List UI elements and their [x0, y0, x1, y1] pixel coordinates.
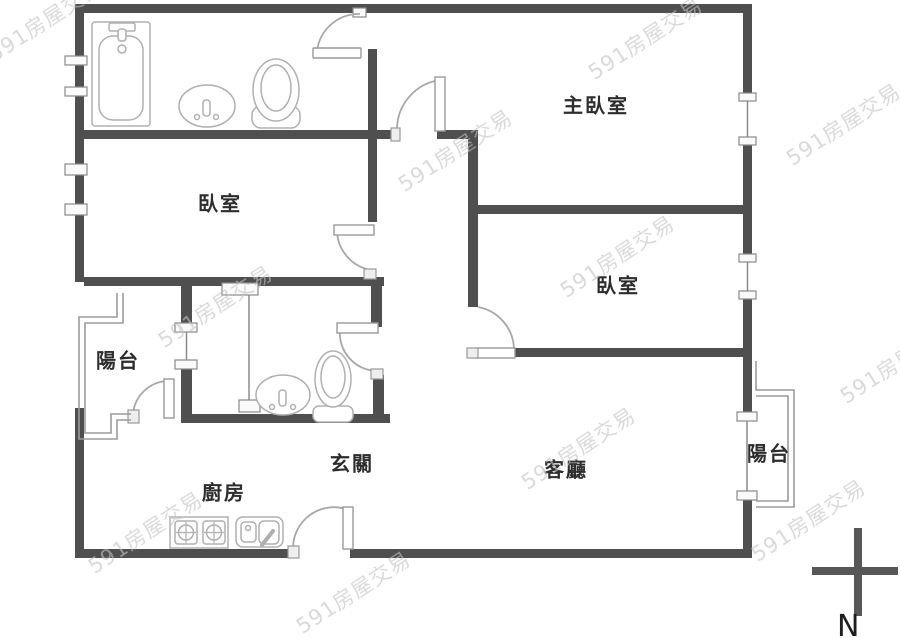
- wall-masterbed-nook-right: [468, 130, 478, 210]
- window-masterbed-cap-bottom: [739, 137, 756, 145]
- glass-partition-cap-top: [222, 283, 258, 295]
- floorplan-drawing: N: [0, 0, 900, 638]
- walls: [75, 4, 752, 558]
- door-balcony-left-leaf: [164, 379, 174, 418]
- wall-exterior-left-upper: [75, 4, 84, 282]
- door-bath1-arc: [317, 14, 360, 52]
- door-bed2-leaf: [476, 348, 515, 358]
- wall-exterior-top: [75, 4, 752, 13]
- door-bed1-stop: [364, 269, 376, 279]
- toilet-icon-2: [313, 351, 353, 422]
- wall-mid-vertical-upper: [368, 49, 377, 222]
- room-label-bedroom-2: 臥室: [596, 270, 640, 299]
- wall-exterior-bottom-right: [350, 549, 752, 558]
- wall-tick-2: [65, 87, 87, 96]
- room-label-living-room: 客廳: [544, 454, 588, 483]
- north-compass-icon: N: [812, 528, 898, 638]
- wall-exterior-bottom-left: [75, 549, 296, 558]
- bathtub-icon: [92, 22, 150, 126]
- wall-exterior-right-1: [743, 4, 752, 95]
- door-bed1-leaf: [334, 225, 374, 235]
- wall-exterior-right-4: [743, 500, 752, 558]
- door-bath1-top-cap: [353, 8, 366, 17]
- wall-masterbed-divider: [468, 205, 752, 214]
- washbasin-icon: [179, 85, 235, 127]
- north-label: N: [837, 609, 859, 638]
- window-balcony-right-cap-top: [737, 412, 757, 421]
- wall-mid-vertical-lower: [373, 375, 384, 418]
- room-label-kitchen: 廚房: [202, 477, 246, 506]
- door-entry-leaf: [343, 507, 353, 549]
- windows: [65, 8, 757, 500]
- door-bath1-leaf: [313, 48, 361, 58]
- wall-bath2-left-lower: [181, 367, 192, 423]
- door-entry-stop: [288, 546, 299, 558]
- door-bed2-stop: [467, 348, 478, 358]
- door-bed1-arc: [337, 230, 371, 270]
- window-balcony-right-cap-bottom: [737, 491, 757, 500]
- floorplan-canvas: N 主臥室臥室臥室陽台陽台玄關廚房客廳 591房屋交易591房屋交易591房屋交…: [0, 0, 900, 638]
- window-bath2-cap-bottom: [175, 360, 197, 369]
- toilet-icon: [252, 59, 300, 128]
- room-label-bedroom-1: 臥室: [198, 188, 242, 217]
- window-bath2-cap-top: [175, 323, 197, 332]
- door-entry-arc: [293, 507, 346, 548]
- room-label-master-bedroom: 主臥室: [563, 90, 629, 119]
- wall-bath1-bottom: [84, 130, 392, 139]
- wall-bath2-left-upper: [181, 282, 192, 327]
- door-balcony-left-stop: [128, 410, 139, 423]
- door-bath2-leaf: [337, 323, 378, 333]
- compass-horizontal-bar: [812, 567, 898, 575]
- door-masterbed-stop: [391, 128, 400, 141]
- window-masterbed-cap-top: [739, 93, 756, 101]
- wall-tick-1: [65, 56, 87, 65]
- door-bed2-arc: [478, 307, 514, 349]
- wall-exterior-right-2: [743, 145, 752, 256]
- window-bed2-cap-top: [739, 254, 756, 262]
- door-masterbed-leaf: [435, 77, 445, 131]
- room-label-balcony-left: 陽台: [96, 345, 140, 374]
- room-label-entry-hall: 玄關: [330, 448, 374, 477]
- door-masterbed-arc: [397, 80, 440, 130]
- room-label-balcony-right: 陽台: [747, 438, 791, 467]
- wall-tick-3: [65, 164, 87, 175]
- washbasin-icon-2: [256, 375, 310, 415]
- door-bath2-stop: [371, 369, 383, 379]
- stove-icon: [170, 517, 228, 548]
- kitchen-sink-icon: [236, 517, 283, 547]
- wall-bed2-left: [468, 214, 478, 307]
- wall-tick-4: [65, 204, 87, 215]
- window-bed2-cap-bottom: [739, 291, 756, 299]
